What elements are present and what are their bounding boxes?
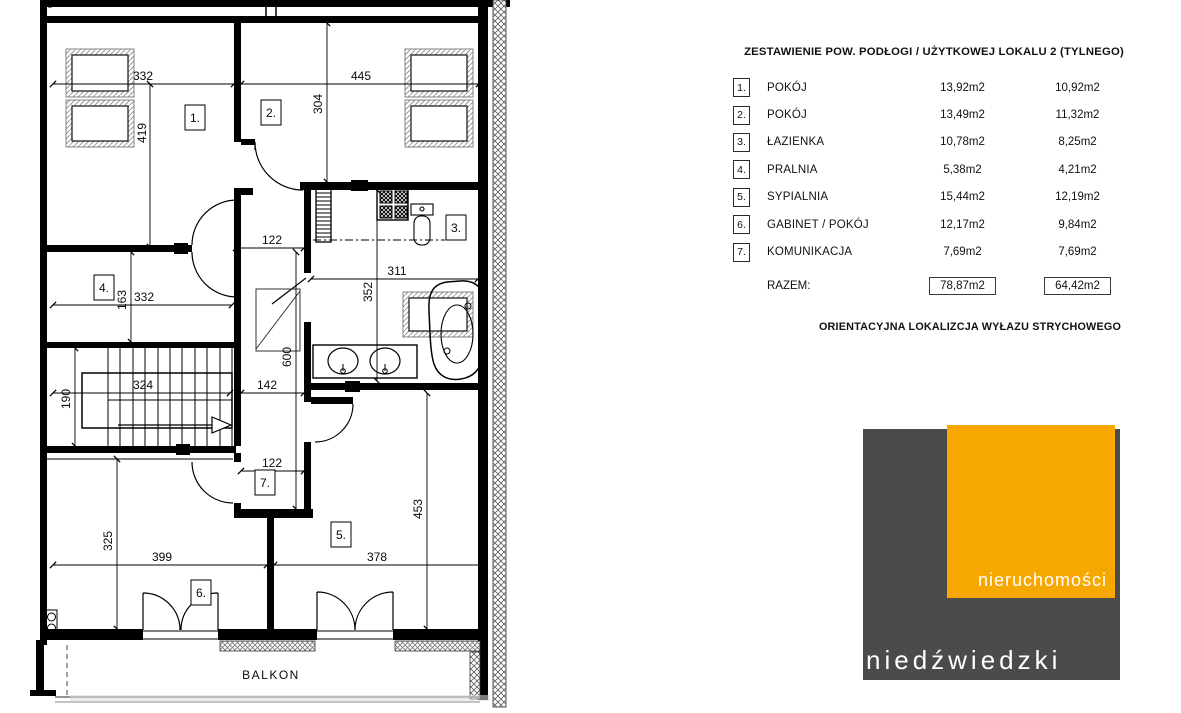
attic-ladder [316,189,331,242]
room-name: GABINET / POKÓJ [755,219,905,231]
floor-area: 13,92m2 [905,82,1020,94]
balcony [55,631,490,702]
attic-hatch [256,289,300,351]
dim-label: 122 [262,456,282,470]
area-table-title: ZESTAWIENIE POW. PODŁOGI / UŻYTKOWEJ LOK… [733,46,1135,58]
area-table: 1. POKÓJ 13,92m2 10,92m2 2. POKÓJ 13,49m… [733,74,1135,301]
roof-window [405,49,473,97]
total-usable-area: 64,42m2 [1044,277,1111,295]
dim-label: 419 [135,123,149,143]
door-room6 [192,462,233,503]
roof-window [405,100,473,147]
dim-label: 163 [115,290,129,310]
roof-window [403,292,473,337]
attic-hatch-note: ORIENTACYJNA LOKALIZCJA WYŁAZU STRYCHOWE… [795,321,1145,333]
floor-area: 7,69m2 [905,246,1020,258]
usable-area: 9,84m2 [1020,219,1135,231]
room-number: 5. [733,188,750,207]
dim-label: 453 [411,499,425,519]
stove [377,188,408,220]
balcony-door-right [317,592,355,630]
room-label-3: 3. [446,215,466,240]
room-name: KOMUNIKACJA [755,246,905,258]
room-label-2: 2. [261,100,281,125]
dim-label: 304 [311,94,325,114]
usable-area: 7,69m2 [1020,246,1135,258]
room-label-1: 1. [185,105,205,130]
room-name: SYPIALNIA [755,191,905,203]
room-name: POKÓJ [755,82,905,94]
total-row: RAZEM: 78,87m2 64,42m2 [733,271,1135,301]
usable-area: 10,92m2 [1020,82,1135,94]
table-row: 7. KOMUNIKACJA 7,69m2 7,69m2 [733,238,1135,265]
room-label-6: 6. [191,580,211,605]
svg-text:3.: 3. [451,221,461,235]
table-row: 6. GABINET / POKÓJ 12,17m2 9,84m2 [733,211,1135,238]
usable-area: 4,21m2 [1020,164,1135,176]
room-name: ŁAZIENKA [755,136,905,148]
dim-label: 445 [351,69,371,83]
room-name: PRALNIA [755,164,905,176]
door-room4 [192,252,237,297]
door-room5 [315,404,353,442]
door-bathroom-leaf [272,278,306,304]
logo-word-niedzwiedzki: niedźwiedzki [866,645,1116,676]
svg-text:5.: 5. [336,528,346,542]
svg-text:7.: 7. [260,476,270,490]
floor-area: 15,44m2 [905,191,1020,203]
room-number: 4. [733,160,750,179]
svg-text:4.: 4. [99,281,109,295]
table-row: 5. SYPIALNIA 15,44m2 12,19m2 [733,184,1135,211]
room-number: 3. [733,133,750,152]
dim-label: 142 [257,378,277,392]
room-label-7: 7. [255,470,275,495]
roof-window [66,100,134,147]
floor-area: 13,49m2 [905,109,1020,121]
balcony-door-left [143,593,180,630]
washbasin-counter [313,345,417,378]
dim-label: 378 [367,550,387,564]
stair-direction-arrow [212,417,231,433]
room-number: 1. [733,78,750,97]
dim-label: 325 [101,531,115,551]
floor-plan-page: { "plan": { "dims": ["332","445","419","… [0,0,1181,713]
dim-label: 332 [134,290,154,304]
dim-label: 352 [361,282,375,302]
dim-label: 190 [59,389,73,409]
floor-area: 10,78m2 [905,136,1020,148]
table-row: 3. ŁAZIENKA 10,78m2 8,25m2 [733,129,1135,156]
table-row: 4. PRALNIA 5,38m2 4,21m2 [733,156,1135,183]
svg-text:6.: 6. [196,586,206,600]
door-room2 [255,142,303,190]
svg-text:1.: 1. [190,111,200,125]
balcony-door-right2 [355,592,393,630]
svg-text:2.: 2. [266,106,276,120]
table-row: 2. POKÓJ 13,49m2 11,32m2 [733,101,1135,128]
floor-plan: 332 445 419 304 122 311 352 163 332 600 … [0,0,520,713]
room-label-5: 5. [331,522,351,547]
dim-label: 122 [262,233,282,247]
room-number: 2. [733,106,750,125]
dim-label: 332 [133,69,153,83]
room-name: POKÓJ [755,109,905,121]
dim-label: 399 [152,550,172,564]
toilet [411,204,433,245]
fixtures [46,188,485,636]
floor-area: 5,38m2 [905,164,1020,176]
dim-label: 324 [133,378,153,392]
table-row: 1. POKÓJ 13,92m2 10,92m2 [733,74,1135,101]
roof-window [66,49,134,97]
logo-word-nieruchomosci: nieruchomości [947,570,1107,591]
room-label-4: 4. [94,275,114,300]
room-number: 6. [733,215,750,234]
total-label: RAZEM: [755,280,905,292]
usable-area: 11,32m2 [1020,109,1135,121]
usable-area: 12,19m2 [1020,191,1135,203]
floor-area: 12,17m2 [905,219,1020,231]
dim-label: 600 [280,347,294,367]
usable-area: 8,25m2 [1020,136,1135,148]
door-room1 [192,200,237,245]
total-floor-area: 78,87m2 [929,277,996,295]
balcony-label: BALKON [242,668,300,682]
room-number: 7. [733,243,750,262]
dim-label: 311 [387,264,406,278]
